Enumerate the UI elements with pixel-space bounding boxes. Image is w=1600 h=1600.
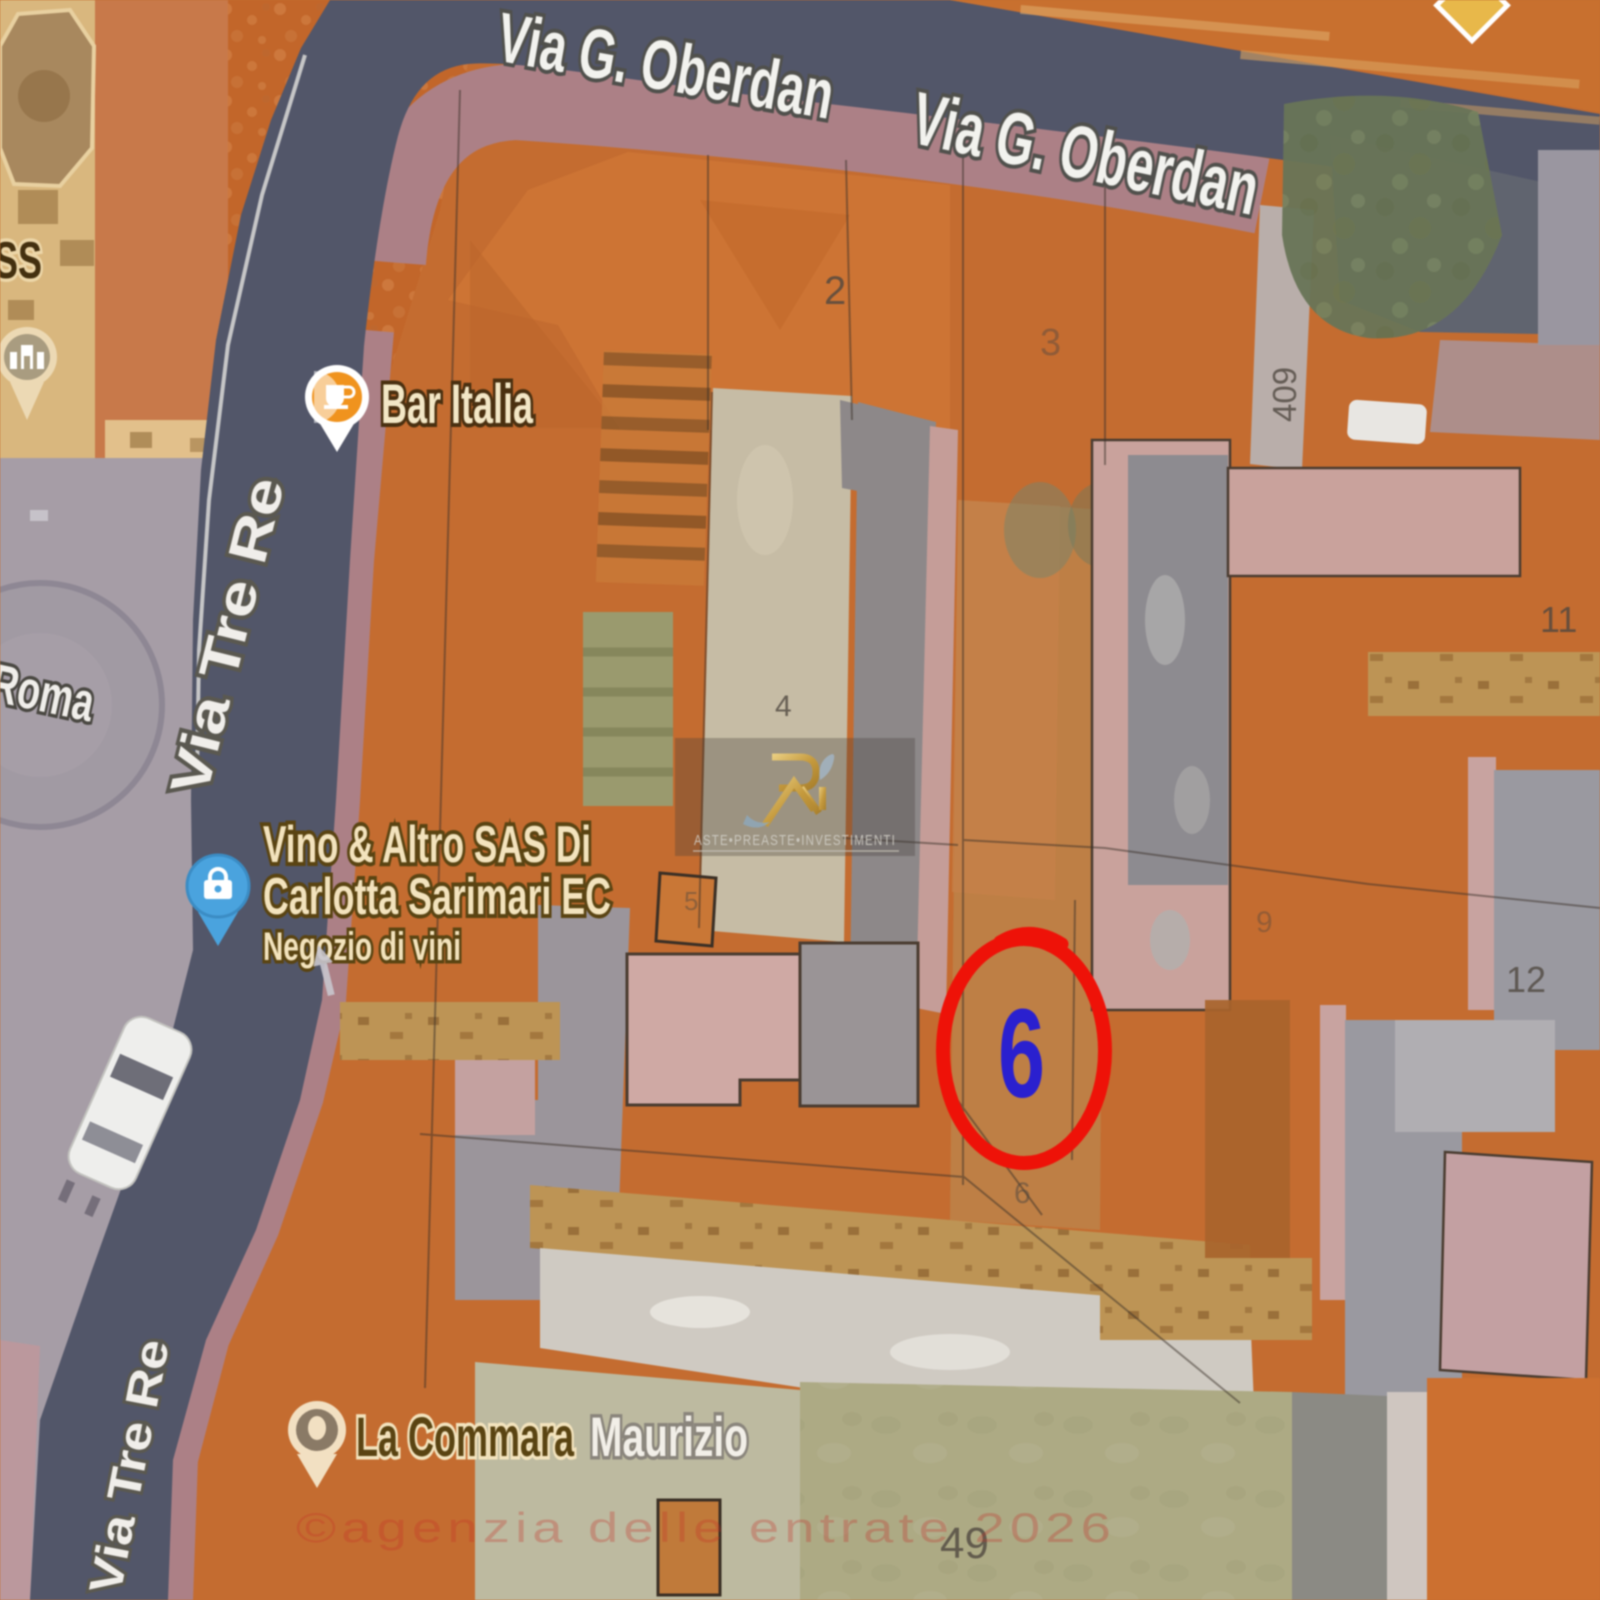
svg-text:12: 12: [1506, 959, 1546, 1000]
svg-text:ASTE•PREASTE•INVESTIMENTI: ASTE•PREASTE•INVESTIMENTI: [694, 832, 896, 849]
svg-text:Carlotta Sarimari EC: Carlotta Sarimari EC: [263, 868, 611, 926]
svg-text:6: 6: [1014, 1177, 1031, 1210]
svg-text:La Commara: La Commara: [356, 1405, 575, 1468]
svg-text:11: 11: [1540, 599, 1577, 640]
svg-text:3: 3: [1040, 322, 1061, 364]
svg-text:409: 409: [1266, 367, 1303, 422]
svg-text:Vino & Altro SAS Di: Vino & Altro SAS Di: [263, 816, 591, 874]
svg-text:9: 9: [1256, 906, 1273, 939]
svg-text:Maurizio: Maurizio: [590, 1405, 748, 1468]
svg-text:SS: SS: [0, 232, 42, 290]
svg-text:4: 4: [775, 690, 792, 723]
svg-text:2: 2: [824, 269, 846, 313]
svg-text:5: 5: [684, 886, 698, 916]
svg-text:Bar Italia: Bar Italia: [381, 372, 534, 435]
svg-text:©agenzia delle entrate 2026: ©agenzia delle entrate 2026: [296, 1504, 1116, 1551]
svg-text:Negozio di vini: Negozio di vini: [263, 925, 461, 969]
svg-text:6: 6: [998, 983, 1045, 1124]
